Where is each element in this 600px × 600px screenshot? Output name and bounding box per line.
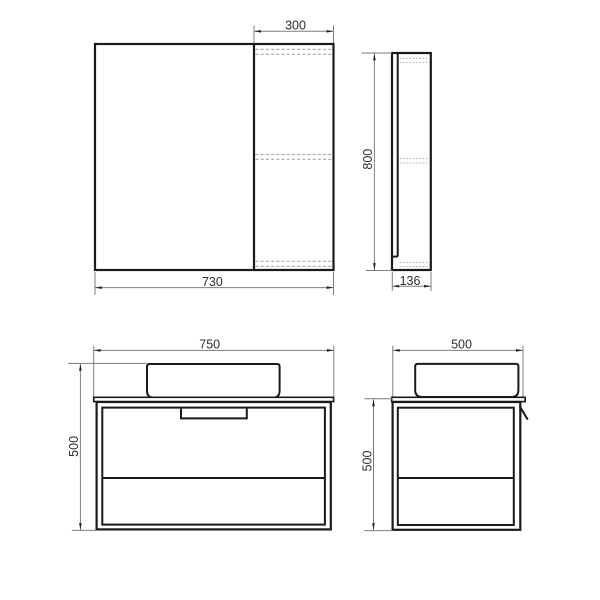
svg-text:730: 730	[202, 275, 223, 289]
svg-text:750: 750	[199, 338, 220, 352]
svg-text:136: 136	[400, 274, 421, 288]
svg-text:300: 300	[285, 19, 306, 33]
svg-text:500: 500	[361, 451, 375, 472]
svg-text:800: 800	[361, 149, 375, 170]
svg-text:500: 500	[67, 436, 81, 457]
svg-text:500: 500	[451, 338, 472, 352]
